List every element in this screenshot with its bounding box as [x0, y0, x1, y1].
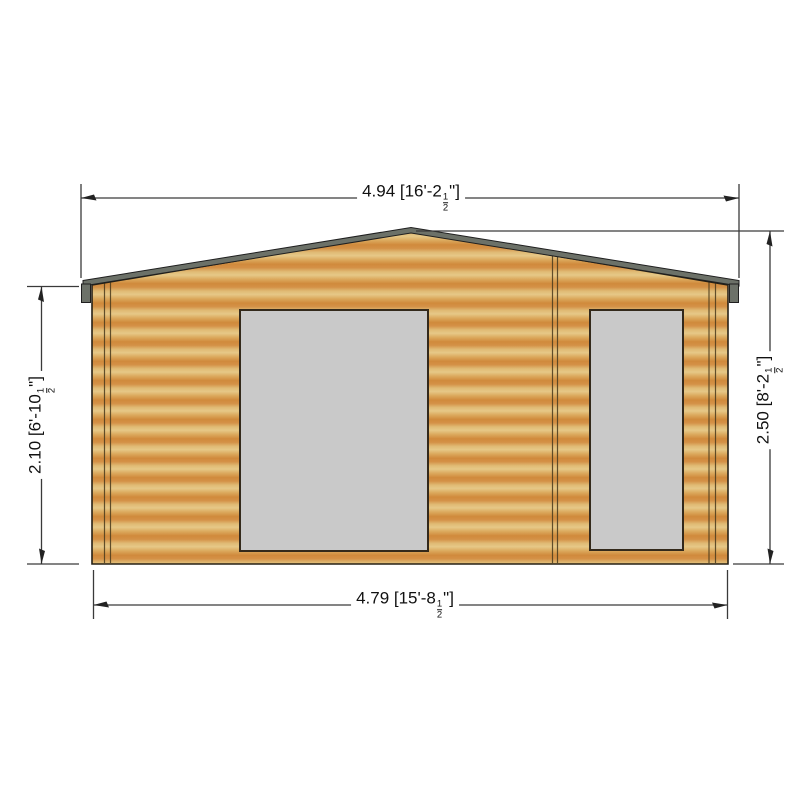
arrow-right: [712, 603, 728, 609]
arrow-up: [38, 287, 44, 303]
gutter-bracket-right: [730, 284, 739, 303]
window-right: [590, 310, 683, 550]
dim-right-suffix: "]: [753, 356, 772, 367]
arrow-left: [94, 602, 110, 608]
arrow-up: [767, 231, 773, 247]
arrow-right: [724, 196, 740, 202]
dimension-label-top: 4.94 [16'-212"]: [357, 181, 465, 215]
dimension-label-bottom: 4.79 [15'-812"]: [351, 588, 459, 622]
arrow-down: [768, 549, 774, 565]
arrow-down: [39, 549, 45, 565]
window-large: [240, 310, 428, 551]
elevation-svg: [0, 0, 800, 800]
dim-left-suffix: "]: [25, 376, 44, 387]
gutter-bracket-left: [82, 284, 91, 303]
dim-right-fraction: 12: [764, 368, 786, 373]
cabin-elevation-drawing: 4.94 [16'-212"] 4.79 [15'-812"] 2.10 [6'…: [0, 0, 800, 800]
dim-top-text: 4.94 [16'-2: [362, 181, 442, 200]
dim-bottom-suffix: "]: [443, 588, 454, 607]
dim-left-text: 2.10 [6'-10: [25, 394, 44, 474]
dim-bottom-text: 4.79 [15'-8: [356, 588, 436, 607]
dimension-label-left: 2.10 [6'-1012"]: [25, 371, 59, 479]
dim-top-suffix: "]: [449, 181, 460, 200]
cabin-body: [92, 232, 728, 565]
dim-right-text: 2.50 [8'-2: [753, 374, 772, 444]
dimension-label-right: 2.50 [8'-212"]: [753, 351, 787, 449]
dim-bottom-fraction: 12: [437, 599, 442, 621]
dim-left-fraction: 12: [36, 388, 58, 393]
dim-top-fraction: 12: [443, 192, 448, 214]
arrow-left: [81, 195, 97, 201]
